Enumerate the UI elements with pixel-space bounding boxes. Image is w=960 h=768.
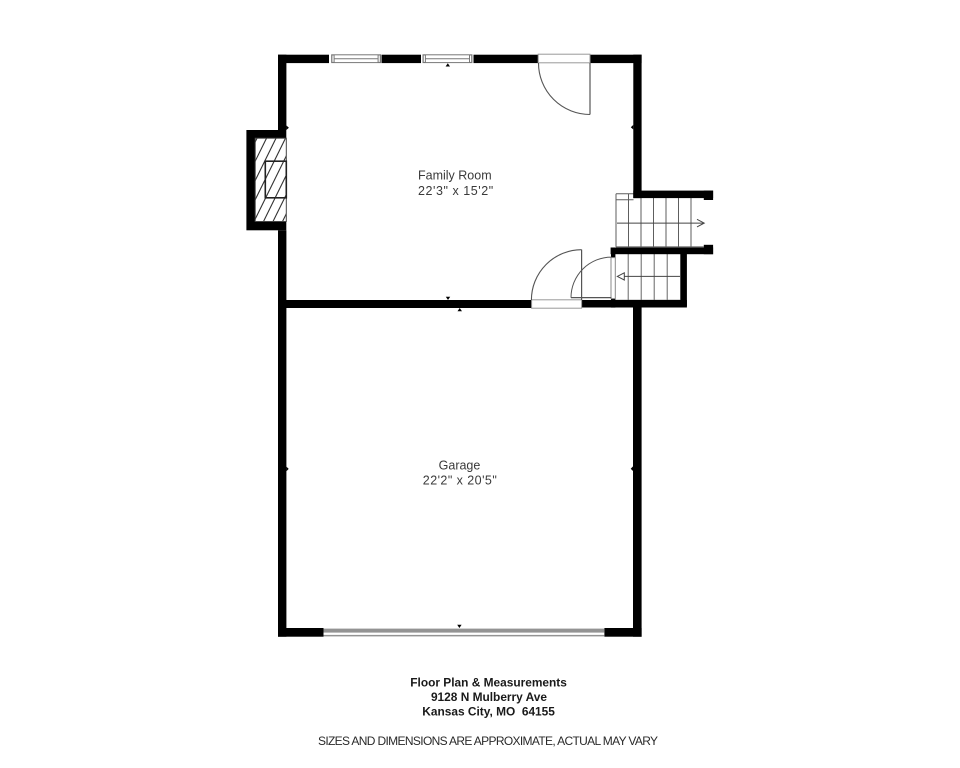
svg-text:Floor Plan & Measurements: Floor Plan & Measurements <box>410 676 567 690</box>
svg-text:Family Room: Family Room <box>418 168 492 182</box>
svg-text:Garage: Garage <box>439 458 481 472</box>
svg-text:22'3" x 15'2": 22'3" x 15'2" <box>418 184 494 198</box>
svg-text:SIZES AND DIMENSIONS ARE APPRO: SIZES AND DIMENSIONS ARE APPROXIMATE, AC… <box>318 734 658 748</box>
svg-text:22'2" x 20'5": 22'2" x 20'5" <box>423 473 497 487</box>
svg-text:9128 N Mulberry Ave: 9128 N Mulberry Ave <box>431 690 547 704</box>
svg-text:Kansas City, MO 64155: Kansas City, MO 64155 <box>422 705 555 719</box>
